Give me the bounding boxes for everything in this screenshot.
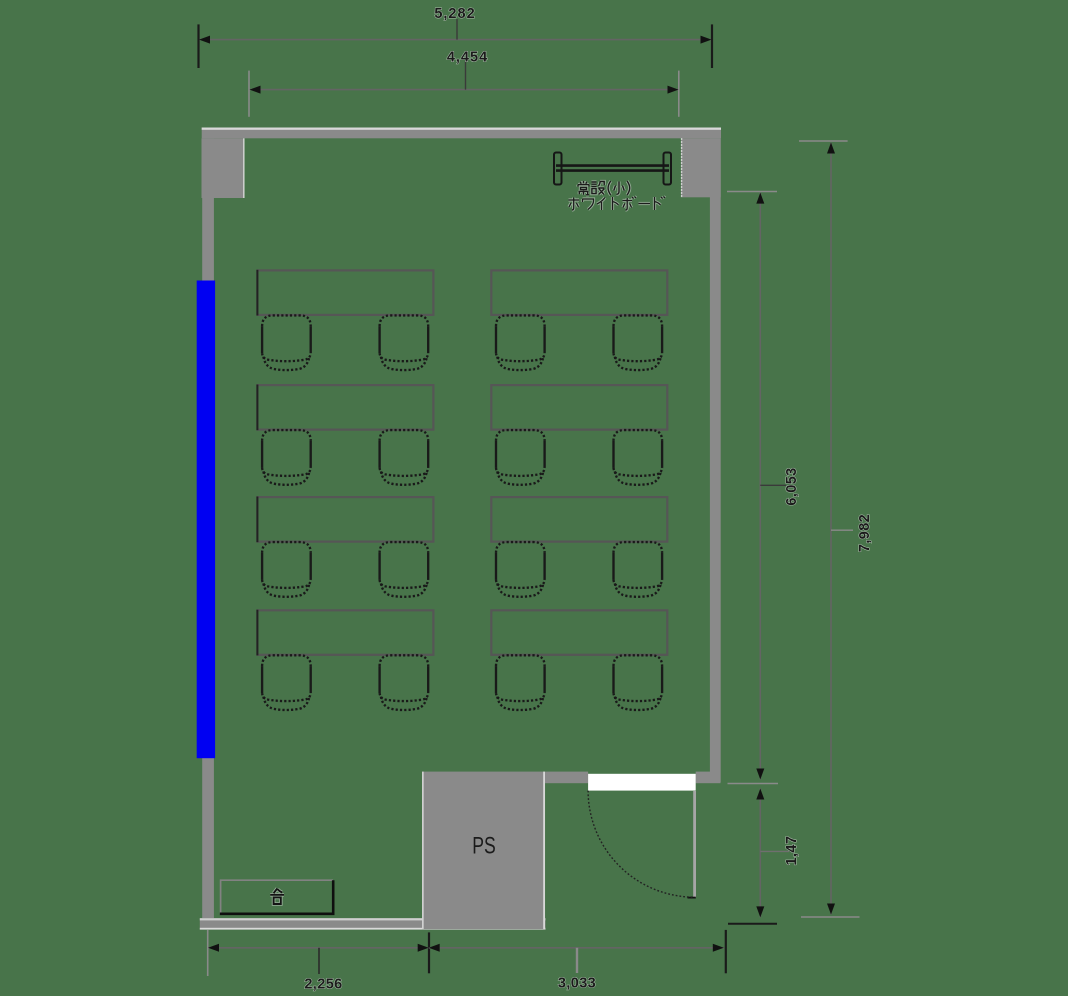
svg-text:3,033: 3,033 <box>558 976 596 992</box>
svg-text:1,47: 1,47 <box>784 836 800 866</box>
svg-text:5,282: 5,282 <box>434 6 475 22</box>
svg-text:7,982: 7,982 <box>857 514 873 552</box>
svg-text:6,053: 6,053 <box>784 467 800 505</box>
svg-text:4,454: 4,454 <box>447 50 488 66</box>
svg-text:2,256: 2,256 <box>304 977 342 993</box>
svg-text:PS: PS <box>472 833 496 860</box>
